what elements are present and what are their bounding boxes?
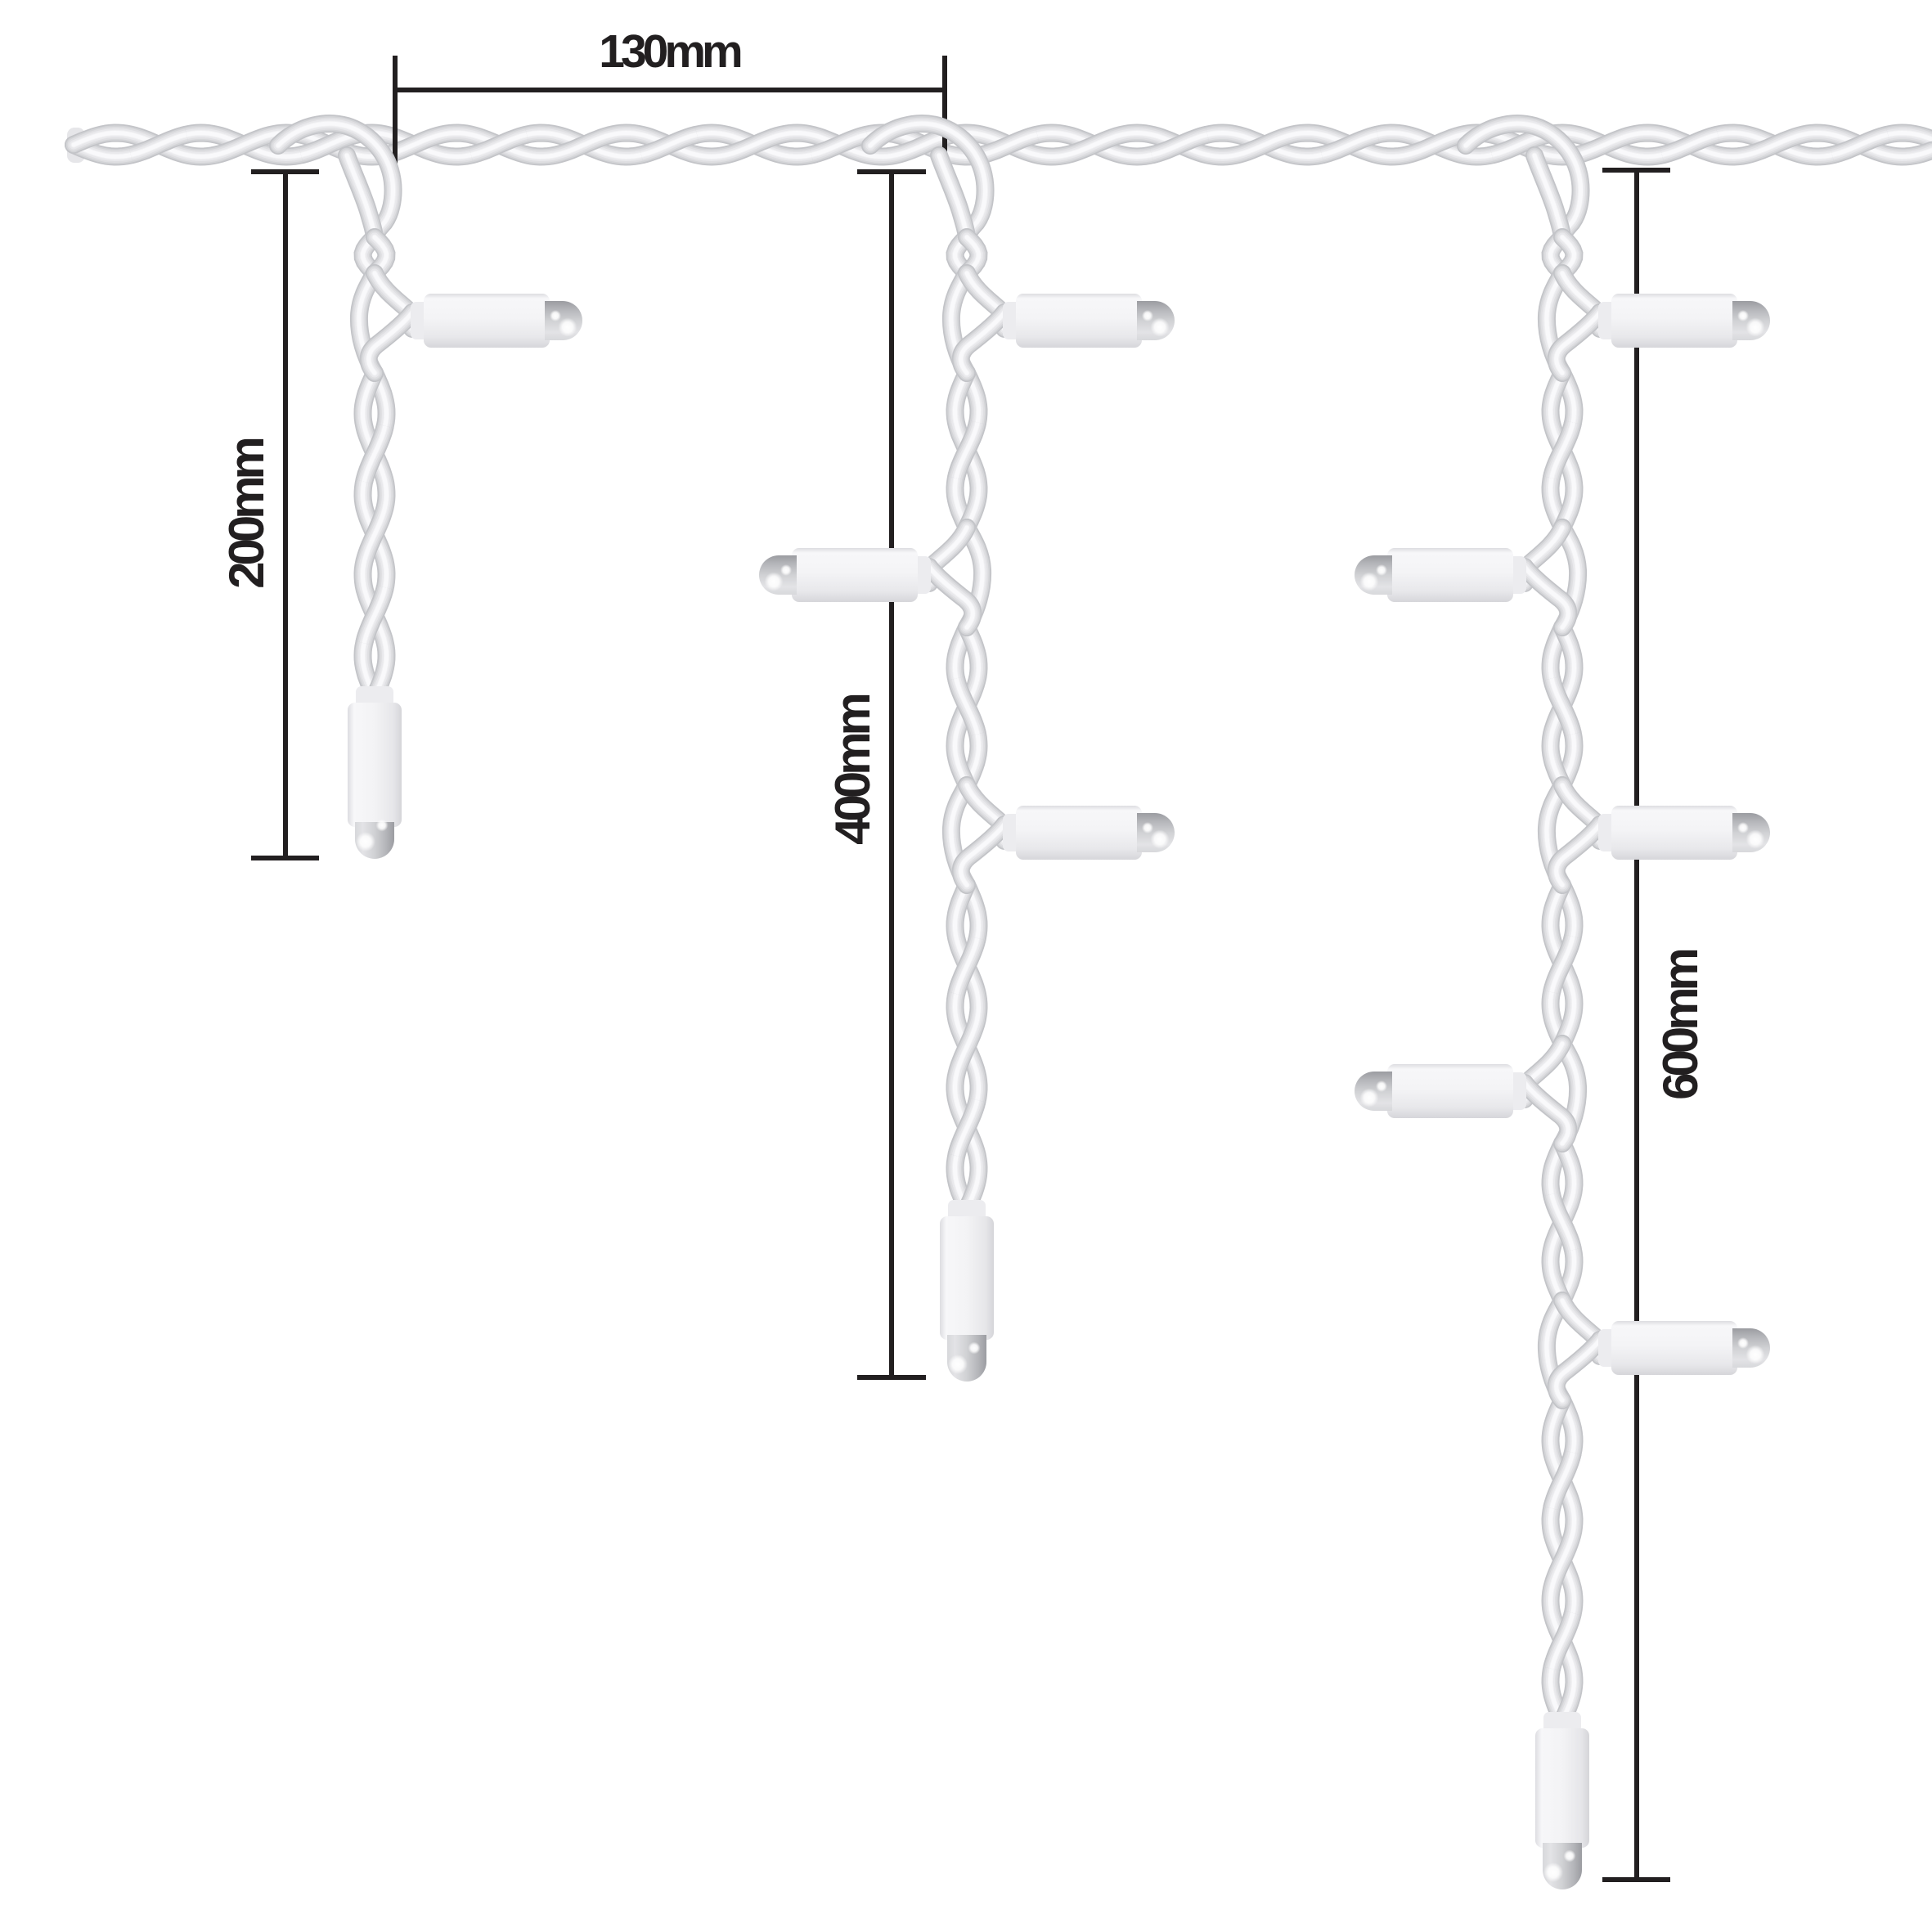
svg-text:130mm: 130mm — [599, 25, 741, 78]
svg-text:200mm: 200mm — [219, 438, 274, 588]
svg-text:600mm: 600mm — [1653, 950, 1708, 1099]
svg-text:400mm: 400mm — [825, 694, 880, 844]
